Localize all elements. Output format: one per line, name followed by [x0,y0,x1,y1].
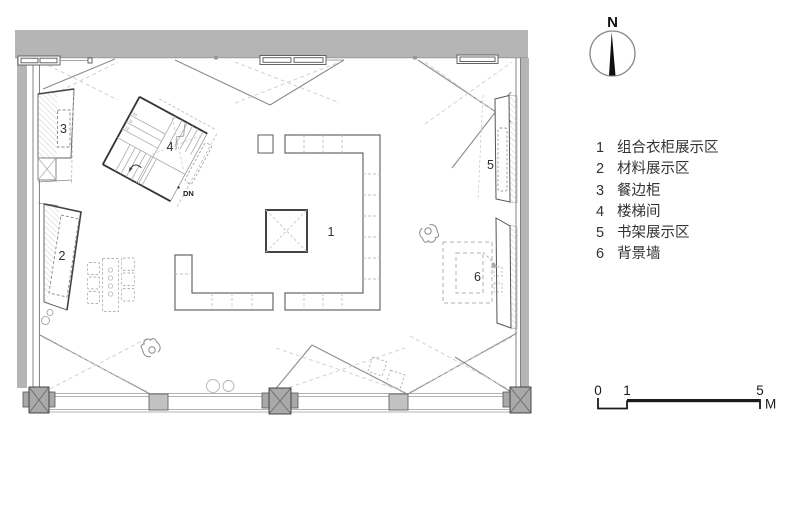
person-figure [138,335,162,359]
legend-item-label: 背景墙 [617,244,661,265]
area-label-6: 6 [474,270,481,284]
legend-item-num: 1 [596,138,617,159]
north-label: N [607,14,618,31]
area-label-3: 3 [60,122,67,136]
scale-tick-5: 5 [756,383,764,398]
bookshelf-display [478,95,517,203]
column-s-mid [262,388,298,414]
legend-item-num: 5 [596,223,617,244]
area-label-2: 2 [59,249,66,263]
legend: 1组合衣柜展示区 2材料展示区 3餐边柜 4楼梯间 5书架展示区 6背景墙 [596,138,719,266]
person-figure [418,223,441,246]
top-wall [15,30,528,58]
legend-item-label: 材料展示区 [617,159,690,180]
legend-item-num: 4 [596,202,617,223]
legend-item: 2材料展示区 [596,159,719,180]
scale-bar: 0 1 5 M [590,372,800,414]
legend-item-label: 餐边柜 [617,181,661,202]
north-compass: N [588,8,638,86]
compass-needle [609,32,616,76]
legend-item: 5书架展示区 [596,223,719,244]
right-wall [516,58,529,394]
floor-plan: 10 11 12 DN [0,0,545,522]
material-display-unit [42,204,82,325]
legend-item-label: 组合衣柜展示区 [617,138,719,159]
stools [207,357,405,392]
scale-bar-segment [627,399,760,402]
scale-unit: M [765,397,776,412]
area-label-5: 5 [487,158,494,172]
legend-item: 3餐边柜 [596,181,719,202]
central-column [266,210,307,252]
left-wall [17,58,40,394]
staircase: 10 11 12 DN [102,90,220,207]
area-label-4: 4 [167,140,174,154]
scale-tick-1: 1 [623,383,631,398]
legend-item: 1组合衣柜展示区 [596,138,719,159]
column-small-2 [389,394,408,410]
legend-item-num: 6 [596,244,617,265]
legend-item-label: 楼梯间 [617,202,661,223]
stair-down-label: DN [183,189,194,198]
legend-item-num: 3 [596,181,617,202]
legend-item-label: 书架展示区 [617,223,690,244]
page: 10 11 12 DN [0,0,800,522]
column-small-1 [149,394,168,410]
legend-item-num: 2 [596,159,617,180]
columns [23,387,531,414]
area-label-1: 1 [328,225,335,239]
legend-item: 6背景墙 [596,244,719,265]
legend-item: 4楼梯间 [596,202,719,223]
table-set [88,258,135,312]
scale-tick-0: 0 [594,383,602,398]
sideboard-unit [38,89,74,206]
